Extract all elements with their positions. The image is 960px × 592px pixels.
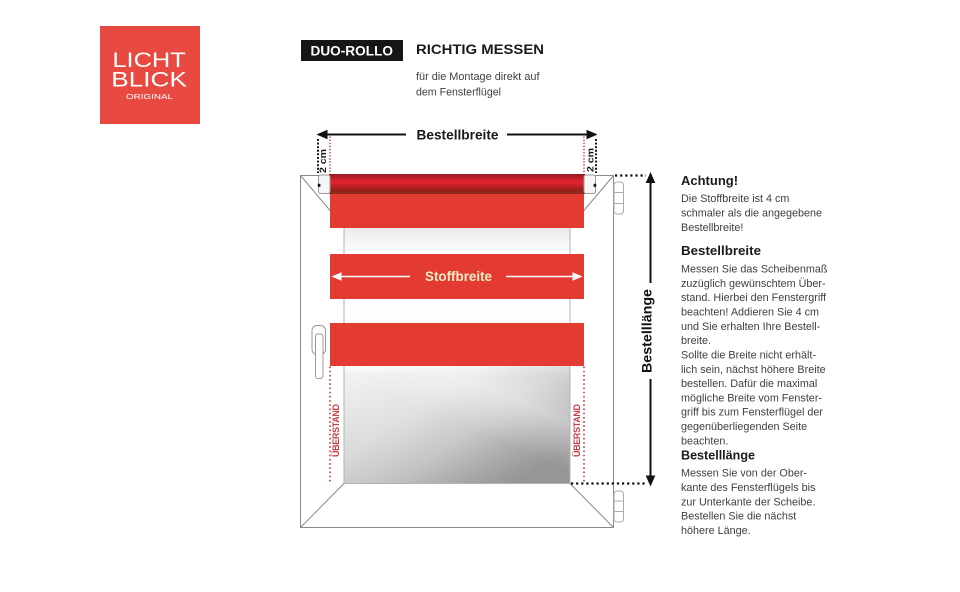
svg-text:dem Fensterflügel: dem Fensterflügel xyxy=(416,86,501,98)
svg-text:mögliche Breite vom Fenster-: mögliche Breite vom Fenster- xyxy=(681,392,822,404)
svg-text:breite.: breite. xyxy=(681,335,711,347)
svg-text:ÜBERSTAND: ÜBERSTAND xyxy=(572,404,582,458)
svg-text:beachten.: beachten. xyxy=(681,435,728,447)
svg-text:bestellen. Dafür die maximal: bestellen. Dafür die maximal xyxy=(681,378,817,390)
svg-text:für die Montage direkt auf: für die Montage direkt auf xyxy=(416,71,541,83)
svg-text:Bestelllänge: Bestelllänge xyxy=(681,448,755,463)
svg-text:2 cm: 2 cm xyxy=(586,148,596,172)
svg-text:Sollte die Breite nicht erhält: Sollte die Breite nicht erhält- xyxy=(681,350,816,362)
svg-text:Bestellen Sie die nächst: Bestellen Sie die nächst xyxy=(681,511,796,523)
svg-text:schmaler als die angegebene: schmaler als die angegebene xyxy=(681,207,822,219)
svg-text:stand. Hierbei den Fenstergrif: stand. Hierbei den Fenstergriff xyxy=(681,292,827,304)
svg-text:ORIGINAL: ORIGINAL xyxy=(126,92,173,101)
svg-text:zuzüglich gewünschtem Über-: zuzüglich gewünschtem Über- xyxy=(681,278,826,290)
svg-text:BLICK: BLICK xyxy=(111,69,187,92)
svg-text:höhere Länge.: höhere Länge. xyxy=(681,525,751,537)
svg-text:Bestelllänge: Bestelllänge xyxy=(639,289,655,373)
svg-text:und Sie erhalten Ihre Bestell-: und Sie erhalten Ihre Bestell- xyxy=(681,321,821,333)
svg-text:Bestellbreite!: Bestellbreite! xyxy=(681,222,743,234)
svg-text:Messen Sie von der Ober-: Messen Sie von der Ober- xyxy=(681,468,807,480)
svg-text:RICHTIG MESSEN: RICHTIG MESSEN xyxy=(416,42,544,57)
svg-text:zur Unterkante der Scheibe.: zur Unterkante der Scheibe. xyxy=(681,496,815,508)
svg-text:Messen Sie das Scheibenmaß: Messen Sie das Scheibenmaß xyxy=(681,264,828,276)
svg-text:2 cm: 2 cm xyxy=(318,149,328,173)
svg-text:lich sein, nächst höhere Breit: lich sein, nächst höhere Breite xyxy=(681,364,826,376)
svg-text:Bestellbreite: Bestellbreite xyxy=(417,128,499,143)
svg-text:beachten! Addieren Sie 4 cm: beachten! Addieren Sie 4 cm xyxy=(681,307,819,319)
svg-text:Stoffbreite: Stoffbreite xyxy=(425,269,492,284)
svg-text:DUO-ROLLO: DUO-ROLLO xyxy=(311,44,394,59)
svg-text:gegenüberliegenden Seite: gegenüberliegenden Seite xyxy=(681,421,807,433)
svg-text:Achtung!: Achtung! xyxy=(681,173,738,188)
svg-text:griff bis zum Fensterflügel de: griff bis zum Fensterflügel der xyxy=(681,407,823,419)
svg-text:kante des Fensterflügels bis: kante des Fensterflügels bis xyxy=(681,482,816,494)
svg-text:Die Stoffbreite ist 4 cm: Die Stoffbreite ist 4 cm xyxy=(681,193,789,205)
svg-text:ÜBERSTAND: ÜBERSTAND xyxy=(331,404,341,458)
svg-text:Bestellbreite: Bestellbreite xyxy=(681,243,761,258)
